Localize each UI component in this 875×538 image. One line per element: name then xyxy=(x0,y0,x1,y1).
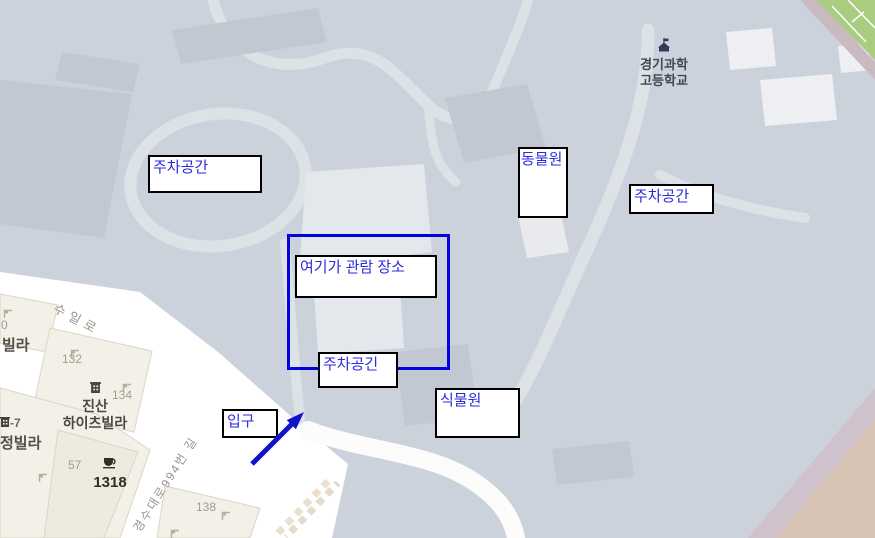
address-marker-icon xyxy=(170,526,180,538)
map-viewport[interactable]: 경기과학 고등학교 수일로 경수대로994번 길 0 132 134 57 13… xyxy=(0,0,875,538)
address-marker-icon xyxy=(221,508,231,526)
jinsan-poi: 진산 하이츠빌라 xyxy=(45,380,145,432)
viewing-spot-box[interactable]: 여기가 관람 장소 xyxy=(295,255,437,298)
school-name-line2: 고등학교 xyxy=(625,73,703,89)
parking-center-box[interactable]: 주차공긴 xyxy=(318,352,398,388)
school-icon xyxy=(656,38,672,52)
building-icon xyxy=(0,416,10,427)
lot-number-138: 138 xyxy=(196,500,216,514)
zoo-box[interactable]: 동물원 xyxy=(518,147,568,218)
villa-suffix: -7 xyxy=(10,416,21,430)
botanical-garden-box[interactable]: 식물원 xyxy=(435,388,520,438)
address-marker-icon xyxy=(38,470,48,488)
villa-poi-7: -7 xyxy=(0,414,21,432)
villa-label-partial: 빌라 xyxy=(2,334,30,355)
coffee-icon xyxy=(102,456,118,469)
parking-left-box[interactable]: 주차공간 xyxy=(148,155,262,193)
lot-number-132: 132 xyxy=(62,352,82,366)
jinsan-name-line2: 하이츠빌라 xyxy=(45,415,145,432)
school-poi: 경기과학 고등학교 xyxy=(625,38,703,89)
building-icon xyxy=(90,381,101,393)
parking-right-label: 주차공간 xyxy=(634,188,689,205)
jinsan-name-line1: 진산 xyxy=(45,398,145,415)
jung-villa-label: 정빌라 xyxy=(0,432,41,453)
cafe-number: 1318 xyxy=(88,474,132,491)
parking-left-label: 주차공간 xyxy=(153,159,208,176)
parking-center-label: 주차공긴 xyxy=(323,356,378,373)
lot-number: 0 xyxy=(1,318,8,332)
parking-right-box[interactable]: 주차공간 xyxy=(629,184,714,214)
cafe-poi: 1318 xyxy=(88,456,132,491)
botanical-garden-label: 식물원 xyxy=(440,392,481,409)
school-name-line1: 경기과학 xyxy=(625,57,703,73)
zoo-label: 동물원 xyxy=(521,151,562,168)
lot-number-57: 57 xyxy=(68,458,81,472)
viewing-spot-label: 여기가 관람 장소 xyxy=(300,259,405,276)
entrance-arrow[interactable] xyxy=(242,402,317,477)
